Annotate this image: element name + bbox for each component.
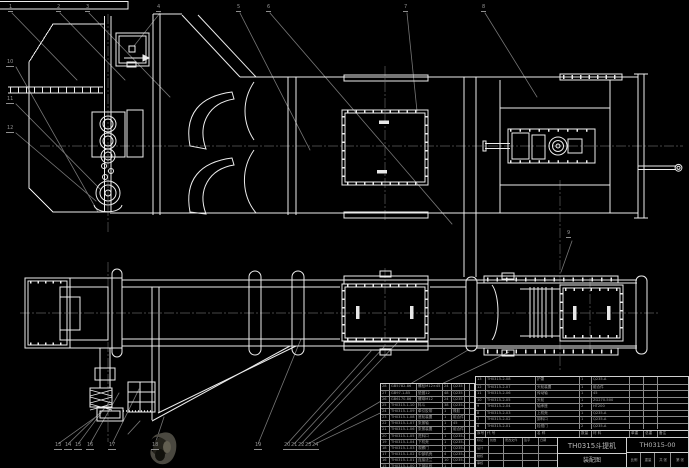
balloon-number: 18 [151, 443, 159, 450]
bom-table-left: 28GB5782-86螺栓M12×4524Q23527GB97.1-85垫圈12… [380, 383, 475, 468]
table-cell [658, 424, 688, 430]
table-cell: 检视门 [536, 424, 580, 430]
product-name: TH0315斗提机 [557, 437, 627, 454]
balloon-number: 11 [6, 97, 14, 104]
table-cell: 1 [443, 464, 452, 468]
balloon-number: 9 [566, 231, 571, 238]
bom-table-right: 13TH0315-2-08护罩1Q235-A12TH0315-2-07头轮装置1… [475, 376, 689, 431]
table-cell: 标记 [476, 438, 489, 445]
table-cell: 15 [381, 464, 390, 468]
table-cell: TH0315-2-01 [486, 424, 536, 430]
balloon-number: 1 [8, 5, 13, 12]
top-view [0, 2, 682, 278]
balloon-number: 12 [6, 126, 14, 133]
table-cell [470, 464, 474, 468]
table-cell [504, 461, 523, 467]
balloon-number: 15 [74, 443, 82, 450]
table-cell [452, 464, 465, 468]
table-cell: TH0315-1-00 [390, 464, 417, 468]
balloon-number: 14 [64, 443, 72, 450]
table-cell [539, 461, 557, 467]
balloon-number: 17 [108, 443, 116, 450]
table-cell: 第 张 [671, 453, 688, 468]
table-cell: 共 张 [655, 453, 671, 468]
balloon-number: 6 [266, 5, 271, 12]
drawing-number: TH0315-00 [626, 437, 689, 453]
sheet-name: 装配图 [557, 453, 627, 468]
table-cell [630, 424, 644, 430]
table-row: 标记处数更改文件签字日期 [476, 438, 557, 445]
table-cell: 日期 [539, 438, 557, 445]
table-cell: Q235-A [592, 424, 630, 430]
table-row: 设计 [476, 445, 557, 452]
table-cell: 签字 [523, 438, 539, 445]
balloon-number: 19 [254, 443, 262, 450]
table-cell: 审核 [476, 461, 489, 467]
balloon-number: 16 [86, 443, 94, 450]
table-cell: 重量 [641, 453, 655, 468]
balloon-number: 10 [6, 60, 14, 67]
balloon-number: 5 [236, 5, 241, 12]
balloon-number: 8 [481, 5, 486, 12]
table-cell: 更改文件 [504, 438, 523, 445]
balloon-number: 3 [85, 5, 90, 12]
balloon-number: 7 [403, 5, 408, 12]
table-cell [644, 424, 658, 430]
table-cell: 比例 [627, 453, 641, 468]
balloon-number: 24 [311, 443, 319, 450]
table-cell [523, 461, 539, 467]
drawing-border-fragment [0, 2, 128, 10]
table-row: 比例重量共 张第 张 [627, 453, 688, 468]
table-row: 15TH0315-1-00下部区段1 [381, 463, 474, 468]
title-block-footer: 比例重量共 张第 张 [626, 452, 689, 468]
table-cell [489, 461, 504, 467]
title-block-sign-grid: 标记处数更改文件签字日期设计校核审核 [475, 437, 558, 468]
balloon-number: 2 [56, 5, 61, 12]
table-cell: 下部区段 [417, 464, 443, 468]
balloon-number: 13 [54, 443, 62, 450]
table-row: 校核 [476, 453, 557, 460]
table-cell: 2 [580, 424, 592, 430]
table-cell: 6 [476, 424, 486, 430]
table-row: 6TH0315-2-01检视门2Q235-A [476, 423, 688, 430]
balloon-number: 4 [156, 5, 161, 12]
table-cell: 处数 [489, 438, 504, 445]
cad-drawing-canvas: 1 2 3 4 5 6 7 8 9 10 11 12 13 14 15 16 1… [0, 0, 689, 468]
table-row: 审核 [476, 460, 557, 467]
